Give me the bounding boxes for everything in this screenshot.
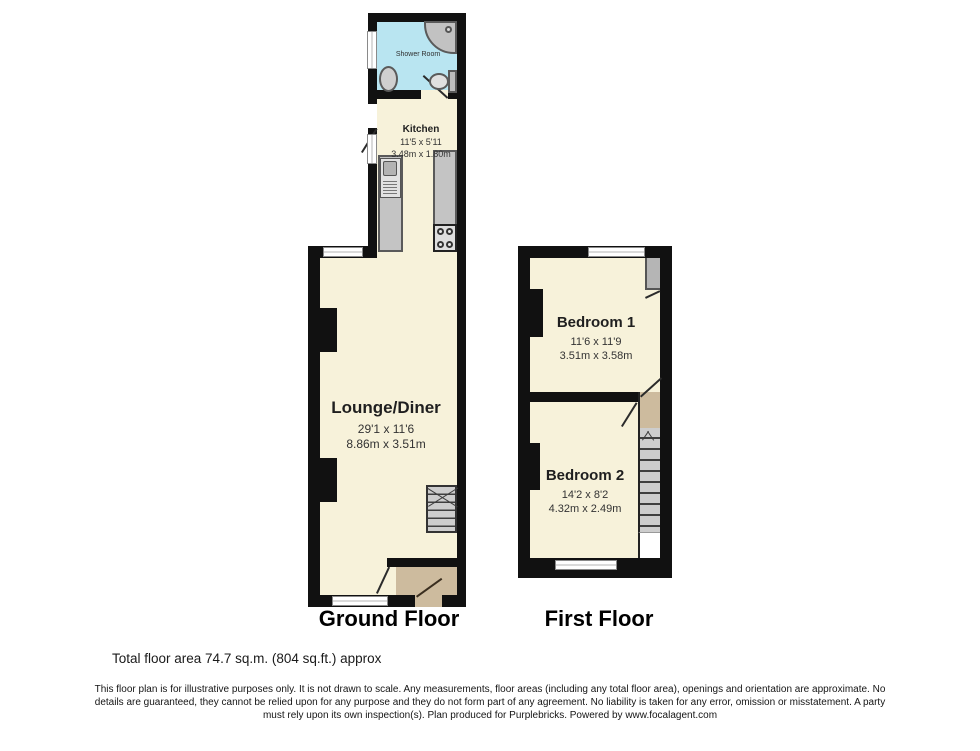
room-dims-imperial: 14'2 x 8'2 xyxy=(546,488,624,502)
room-name: Bedroom 1 xyxy=(557,314,635,331)
hob-burner-icon xyxy=(437,241,444,248)
disclaimer-text: This floor plan is for illustrative purp… xyxy=(90,684,890,722)
bedroom1-cupboard xyxy=(645,258,660,290)
room-name: Shower Room xyxy=(396,51,440,58)
stairs-void xyxy=(638,532,660,558)
room-dims-metric: 4.32m x 2.49m xyxy=(546,502,624,516)
bedroom2-label: Bedroom 2 14'2 x 8'2 4.32m x 2.49m xyxy=(546,467,624,516)
shower-window xyxy=(367,31,377,69)
hob-burner-icon xyxy=(437,228,444,235)
bathroom-sink xyxy=(379,66,398,92)
hob-burner-icon xyxy=(446,241,453,248)
chimney-breast xyxy=(320,308,337,352)
toilet-bowl xyxy=(429,73,449,90)
room-dims-metric: 8.86m x 3.51m xyxy=(331,437,441,452)
toilet-cistern xyxy=(448,70,457,93)
room-dims-imperial: 11'5 x 5'11 xyxy=(391,136,451,148)
kitchen-sink-drainer xyxy=(383,179,397,195)
kitchen-hob xyxy=(433,224,457,252)
stairs-ground xyxy=(426,485,457,533)
kitchen-window xyxy=(367,134,377,164)
chimney-breast xyxy=(518,289,543,337)
stairs-first-floor xyxy=(638,428,660,532)
hob-burner-icon xyxy=(446,228,453,235)
ground-floor-title: Ground Floor xyxy=(319,606,460,632)
kitchen-label: Kitchen 11'5 x 5'11 3.48m x 1.80m xyxy=(391,124,451,160)
kitchen-side-door-opening xyxy=(367,104,377,128)
shower-head-icon xyxy=(445,26,452,33)
shower-room-label: Shower Room xyxy=(396,51,440,58)
chimney-breast xyxy=(518,443,540,490)
bedroom2-window xyxy=(555,560,617,570)
first-floor-title: First Floor xyxy=(545,606,654,632)
lounge-bottom-window xyxy=(332,596,388,606)
room-dims-metric: 3.48m x 1.80m xyxy=(391,148,451,160)
total-floor-area-text: Total floor area 74.7 sq.m. (804 sq.ft.)… xyxy=(112,651,381,666)
bedroom1-label: Bedroom 1 11'6 x 11'9 3.51m x 3.58m xyxy=(557,314,635,363)
room-dims-metric: 3.51m x 3.58m xyxy=(557,349,635,363)
room-name: Kitchen xyxy=(391,124,451,136)
room-dims-imperial: 29'1 x 11'6 xyxy=(331,422,441,437)
kitchen-sink-unit xyxy=(380,158,401,198)
lounge-top-window xyxy=(323,247,363,257)
kitchen-sink-basin xyxy=(383,161,397,176)
chimney-breast xyxy=(320,458,337,502)
room-dims-imperial: 11'6 x 11'9 xyxy=(557,335,635,349)
hall-wall xyxy=(387,558,457,567)
bedroom1-window xyxy=(588,247,645,257)
floorplan-canvas: Shower Room Kitchen 11'5 x 5'11 3.48m x … xyxy=(0,0,980,751)
room-name: Lounge/Diner xyxy=(331,398,441,417)
lounge-label: Lounge/Diner 29'1 x 11'6 8.86m x 3.51m xyxy=(331,398,441,452)
room-name: Bedroom 2 xyxy=(546,467,624,484)
